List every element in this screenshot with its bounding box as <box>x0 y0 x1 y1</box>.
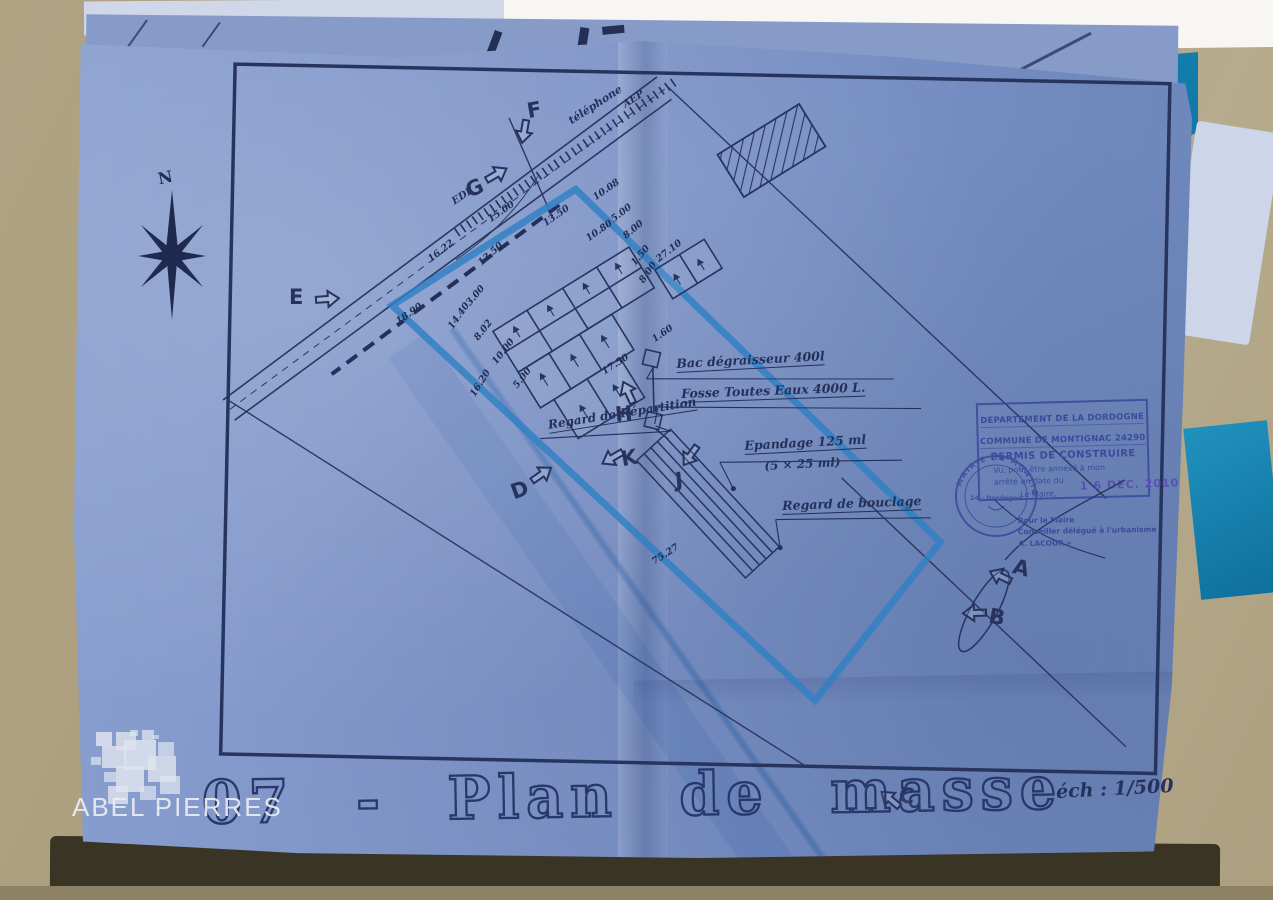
stamp-line2: COMMUNE DE MONTIGNAC 24290 <box>980 433 1146 449</box>
view-marker-letter: H <box>614 401 634 426</box>
septic-tanks <box>641 349 670 439</box>
watermark-logo <box>96 732 112 746</box>
hatched-building <box>718 104 826 197</box>
view-marker-letter: E <box>289 285 303 309</box>
photo-of-site-plan: N <box>0 0 1273 900</box>
stamp-line1: DEPARTEMENT DE LA DORDOGNE <box>980 412 1144 428</box>
watermark-text: ABEL PIERRES <box>72 792 283 823</box>
signature-text: Pour le Maire Conseiller délégué à l'urb… <box>1018 513 1157 549</box>
view-direction-arrow-icon <box>961 603 988 624</box>
pencil-stroke <box>202 22 221 48</box>
stencil-fragment <box>602 25 625 35</box>
compass-rose-icon <box>132 188 212 328</box>
pencil-stroke <box>126 19 147 48</box>
sig-line3: A. LACOUR » <box>1018 535 1157 549</box>
desk-edge <box>0 886 1273 900</box>
teal-folder-right <box>1183 420 1273 600</box>
view-direction-arrow-icon <box>314 288 341 310</box>
